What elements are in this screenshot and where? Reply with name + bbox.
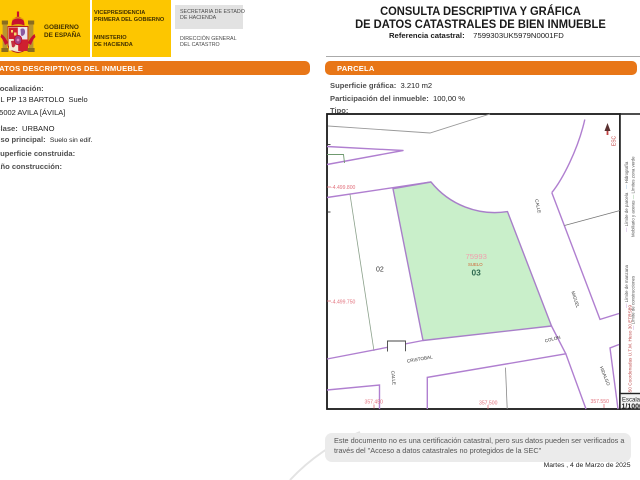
svg-text:CRISTOBAL: CRISTOBAL	[407, 354, 434, 364]
svg-text:— Límite de parcela — Hidrog: — Límite de parcela — Hidrografía	[624, 161, 629, 232]
svg-text:COLON: COLON	[544, 335, 561, 344]
svg-text:Mobiliario y aceras — Límites: Mobiliario y aceras — Límites zona verde	[631, 156, 636, 237]
svg-text:1/1000: 1/1000	[622, 404, 640, 411]
svg-text:CALLE: CALLE	[390, 370, 396, 385]
svg-text:CALLE: CALLE	[534, 199, 542, 214]
svg-text:— Límite de manzana: — Límite de manzana	[624, 264, 629, 308]
svg-text:SUELO: SUELO	[468, 262, 483, 267]
svg-text:-4.499.750: -4.499.750	[331, 300, 356, 306]
svg-text:MIGUEL: MIGUEL	[570, 291, 580, 309]
svg-text:357.550 Coordenadas U.T.M. Hus: 357.550 Coordenadas U.T.M. Huso 30 ETRS8…	[628, 305, 633, 404]
svg-text:ESC: ESC	[612, 135, 618, 146]
svg-text:02: 02	[376, 267, 384, 274]
svg-text:-4.499.800: -4.499.800	[331, 185, 356, 191]
svg-text:75993: 75993	[466, 252, 487, 261]
svg-text:03: 03	[472, 268, 482, 278]
svg-text:357.550: 357.550	[591, 399, 610, 405]
svg-text:HIDALGO: HIDALGO	[599, 366, 611, 387]
